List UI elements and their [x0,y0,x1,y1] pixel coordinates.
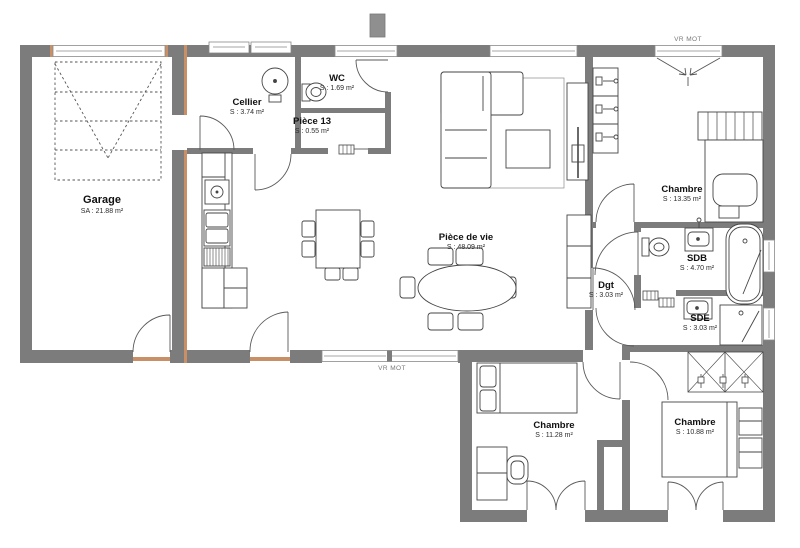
dressing-closets [688,352,763,392]
garage-door-guides [55,62,161,180]
floor-plan: Garage SA : 21.88 m² Cellier S : 3.74 m²… [0,0,800,548]
room-label-cellier: Cellier S : 3.74 m² [230,97,264,118]
shutter-label-bottom: VR MOT [378,365,406,372]
kitchen-island-table [302,210,374,280]
water-heater-icon [262,68,288,102]
floor-plan-drawing [0,0,800,548]
room-label-piece13: Pièce 13 S : 0.55 m² [293,116,331,137]
sofa [441,72,564,188]
room-label-chambre-3: Chambre S : 10.88 m² [674,417,715,438]
desk [477,447,507,500]
room-label-sdb: SDB S : 4.70 m² [680,253,714,274]
chimney [370,14,385,37]
nightstand [739,438,762,468]
room-label-garage: Garage SA : 21.88 m² [81,194,123,217]
room-label-piece-de-vie: Pièce de vie S : 48.09 m² [439,232,493,253]
coffee-table [506,130,550,168]
bed-chambre-top [698,112,763,222]
room-label-sde: SDE S : 3.03 m² [683,313,717,334]
kitchen-counter [202,153,247,308]
room-label-wc: WC S : 1.69 m² [320,73,354,94]
dining-table [400,248,516,330]
toilet-tank [642,238,649,256]
room-label-chambre-2: Chambre S : 11.28 m² [533,420,574,441]
wardrobe-chambre-top [593,68,618,153]
room-label-chambre-1: Chambre S : 13.35 m² [661,184,702,205]
shutter-label-top: VR MOT [674,36,702,43]
bed-chambre-right [662,402,762,477]
shutter-arrows [657,58,720,86]
nightstand [739,408,762,435]
room-label-dgt: Dgt S : 3.03 m² [589,280,623,301]
